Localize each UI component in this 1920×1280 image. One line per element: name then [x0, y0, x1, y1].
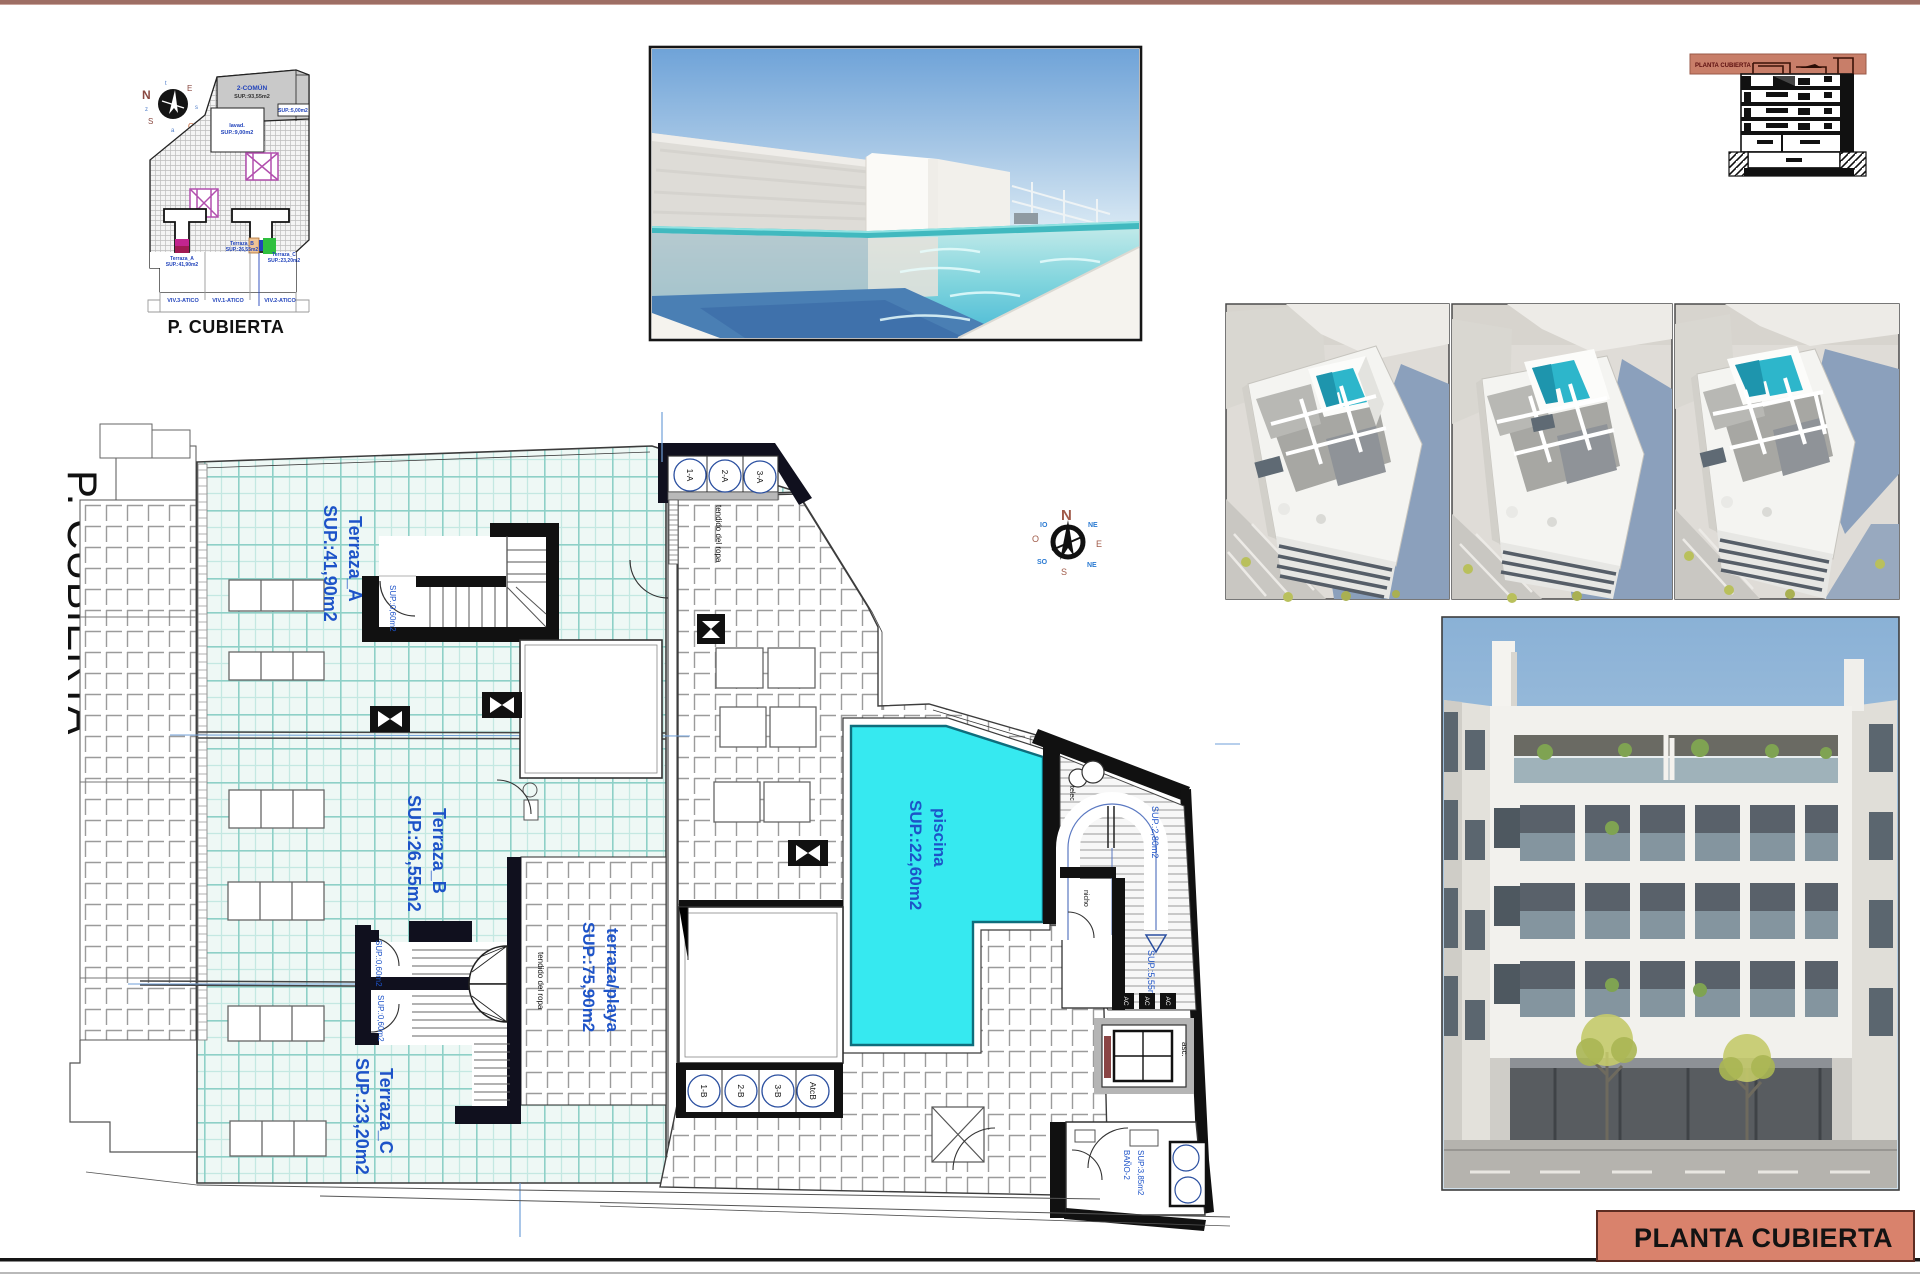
svg-text:S: S: [148, 117, 153, 126]
svg-text:N: N: [1061, 507, 1072, 524]
svg-text:SO: SO: [1037, 559, 1048, 566]
svg-text:Terraza_A: Terraza_A: [345, 516, 365, 602]
svg-text:VIV.2-ATICO: VIV.2-ATICO: [264, 298, 296, 304]
svg-text:SUP.:41,90m2: SUP.:41,90m2: [166, 262, 199, 268]
svg-text:tendido del ropa: tendido del ropa: [714, 505, 723, 563]
svg-text:SUP.:26,55m2: SUP.:26,55m2: [404, 795, 424, 912]
svg-text:SUP.:23,20m2: SUP.:23,20m2: [352, 1058, 372, 1175]
svg-text:1-B: 1-B: [699, 1084, 709, 1098]
svg-text:N: N: [142, 88, 151, 102]
svg-text:NE: NE: [1088, 522, 1098, 529]
svg-text:asc.: asc.: [1180, 1042, 1189, 1057]
svg-text:NE: NE: [1087, 562, 1097, 569]
svg-text:lavad.: lavad.: [229, 123, 245, 129]
svg-text:nicho: nicho: [1082, 890, 1089, 907]
svg-text:SUP.:26,55m2: SUP.:26,55m2: [226, 247, 259, 253]
svg-text:E: E: [1096, 539, 1102, 549]
svg-text:O: O: [1032, 534, 1039, 544]
svg-text:2-A: 2-A: [720, 470, 729, 483]
svg-text:VIV.3-ATICO: VIV.3-ATICO: [167, 298, 199, 304]
svg-text:P. CUBIERTA: P. CUBIERTA: [168, 317, 285, 337]
svg-text:AtcB: AtcB: [808, 1082, 818, 1100]
svg-text:Terraza_B: Terraza_B: [429, 808, 449, 894]
svg-text:AC: AC: [1164, 996, 1171, 1005]
svg-text:1-A: 1-A: [685, 469, 694, 482]
svg-text:BAÑO-2: BAÑO-2: [1122, 1150, 1131, 1180]
svg-text:SUP:3,85m2: SUP:3,85m2: [1136, 1150, 1145, 1196]
svg-text:telec: telec: [1068, 786, 1075, 801]
svg-text:SUP.:0,60m2: SUP.:0,60m2: [376, 995, 385, 1042]
svg-text:SUP.:2,80m2: SUP.:2,80m2: [1150, 806, 1160, 858]
svg-text:tendido del ropa: tendido del ropa: [536, 952, 545, 1010]
svg-text:E: E: [187, 84, 192, 93]
svg-text:SUP.:5,00m2: SUP.:5,00m2: [278, 108, 308, 114]
svg-text:3-A: 3-A: [755, 471, 764, 484]
svg-text:SUP.:0,60m2: SUP.:0,60m2: [388, 585, 397, 632]
svg-text:IO: IO: [1040, 522, 1048, 529]
svg-text:2-B: 2-B: [736, 1084, 746, 1098]
svg-text:terraza/playa: terraza/playa: [603, 928, 622, 1032]
svg-text:SUP.:75,90m2: SUP.:75,90m2: [579, 922, 598, 1032]
svg-text:PLANTA CUBIERTA: PLANTA CUBIERTA: [1695, 63, 1752, 69]
svg-text:SUP.:22,60m2: SUP.:22,60m2: [906, 800, 925, 910]
svg-text:SUP.:0,60m2: SUP.:0,60m2: [374, 940, 383, 987]
svg-text:AC: AC: [1122, 996, 1129, 1005]
svg-text:z: z: [145, 107, 148, 113]
svg-text:2-COMÚN: 2-COMÚN: [237, 83, 268, 92]
svg-text:SUP.:41,90m2: SUP.:41,90m2: [320, 505, 340, 622]
svg-text:3-B: 3-B: [773, 1084, 783, 1098]
svg-text:VIV.1-ATICO: VIV.1-ATICO: [212, 298, 244, 304]
svg-text:SUP.:23,20m2: SUP.:23,20m2: [268, 258, 301, 264]
svg-text:s: s: [195, 105, 198, 111]
svg-text:SUP.:9,00m2: SUP.:9,00m2: [221, 130, 254, 136]
svg-text:S: S: [1061, 567, 1067, 577]
svg-text:SUP.:93,55m2: SUP.:93,55m2: [234, 94, 270, 100]
svg-text:PLANTA CUBIERTA: PLANTA CUBIERTA: [1634, 1223, 1893, 1253]
svg-text:Terraza_C: Terraza_C: [376, 1068, 396, 1154]
svg-text:AC: AC: [1143, 996, 1150, 1005]
svg-text:piscina: piscina: [930, 808, 949, 867]
